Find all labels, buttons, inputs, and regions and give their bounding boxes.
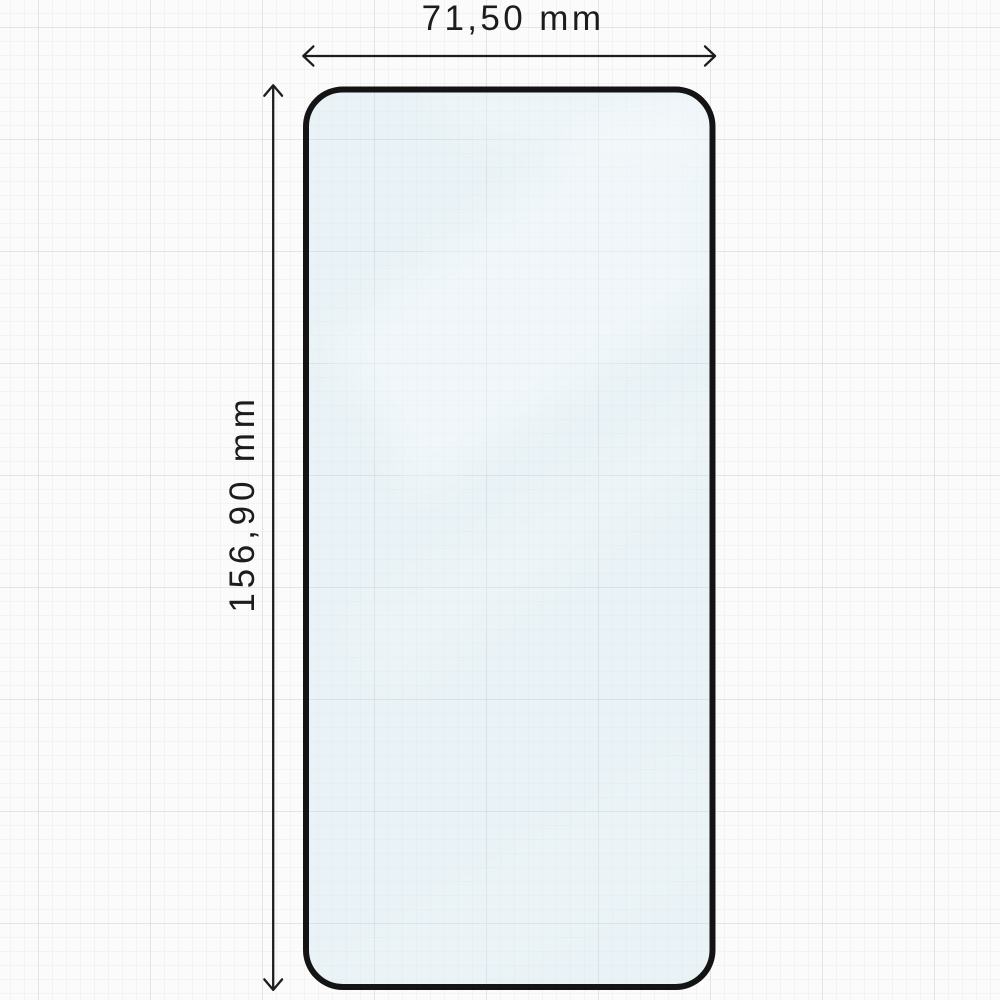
svg-text:71,50 mm: 71,50 mm — [422, 0, 605, 38]
svg-text:156,90 mm: 156,90 mm — [223, 394, 262, 612]
